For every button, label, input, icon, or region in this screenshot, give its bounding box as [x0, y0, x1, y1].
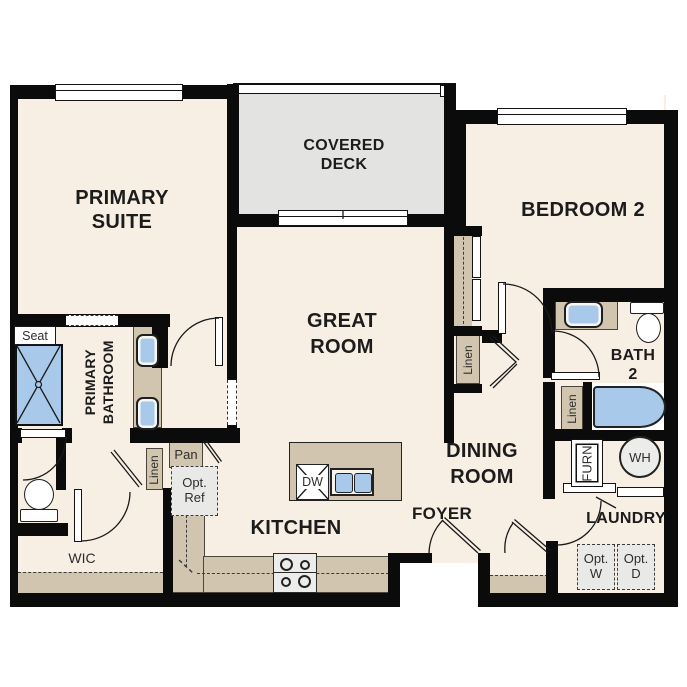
wall [444, 226, 482, 236]
wall [227, 84, 239, 216]
wall [388, 553, 432, 563]
primary-suite-door [215, 317, 223, 366]
bathtub [593, 386, 666, 428]
stove [273, 553, 317, 593]
opt-ref-line2: Ref [184, 491, 204, 506]
room-label-primary-suite: PRIMARY [42, 187, 202, 210]
bath2-toilet-bowl [636, 313, 661, 343]
kitchen-sink-basin-right [354, 473, 372, 493]
kitchen-counter-left [172, 512, 205, 593]
burner [281, 577, 291, 587]
primary-sink-2 [136, 397, 159, 430]
wall [227, 216, 237, 382]
opt-ref-line1: Opt. [182, 476, 207, 491]
wall [452, 110, 466, 228]
dishwasher: DW [296, 464, 329, 500]
kitchen-sink [330, 468, 374, 496]
room-label-kitchen: KITCHEN [216, 517, 376, 540]
wall [546, 541, 558, 593]
primary-toilet-tank [20, 509, 58, 522]
primary-sink-1 [136, 334, 159, 367]
room-label-bedroom2: BEDROOM 2 [483, 199, 683, 222]
wall [56, 430, 66, 490]
water-closet-door [20, 429, 66, 438]
wall [543, 382, 555, 429]
wh-label: WH [629, 450, 651, 465]
room-label-great-room-2: ROOM [262, 336, 422, 359]
primary-toilet-bowl [24, 479, 54, 510]
room-label-foyer: FOYER [382, 504, 502, 524]
room-label-laundry: LAUNDRY [566, 510, 686, 528]
room-label-primary-bathroom: PRIMARY BATHROOM [81, 312, 117, 452]
linen-label-hall: Linen [147, 450, 161, 490]
bedroom2-door [498, 282, 506, 334]
room-label-dining: DINING [402, 440, 562, 463]
dw-label: DW [301, 475, 324, 489]
deck-rail-band [235, 85, 454, 94]
wall [478, 593, 678, 607]
stove-divider [274, 572, 316, 573]
optional-washer: Opt. W [577, 544, 615, 590]
burner [300, 560, 310, 570]
wic-door [74, 489, 82, 542]
bedroom2-closet-bifold-2 [472, 279, 481, 321]
primary-suite-window [55, 84, 183, 101]
room-label-wic: WIC [52, 550, 112, 566]
water-heater: WH [619, 436, 661, 478]
room-label-great-room: GREAT [262, 310, 422, 333]
furnace-closet-slider-2 [617, 487, 664, 497]
opt-d-line2: D [631, 567, 640, 582]
seat-label: Seat [22, 329, 48, 343]
counter-dashline-vertical [186, 515, 187, 567]
wall [478, 553, 490, 607]
deck-sliding-door [278, 210, 408, 226]
furn-label: FURN [580, 442, 595, 486]
bath2-sink [564, 301, 603, 328]
optional-dryer: Opt. D [617, 544, 655, 590]
linen-label-dining-hall: Linen [461, 340, 475, 380]
wall [10, 523, 68, 536]
wall [543, 288, 678, 302]
room-label-bath2: BATH [593, 347, 673, 365]
optional-refrigerator: Opt. Ref [171, 466, 218, 516]
opt-w-line2: W [590, 567, 602, 582]
opt-d-line1: Opt. [624, 552, 649, 567]
wall [130, 428, 240, 443]
bedroom2-window [497, 108, 627, 125]
exterior-patch [456, 90, 664, 110]
burner [298, 575, 311, 588]
room-label-bath2-num: 2 [593, 366, 673, 384]
wall [10, 593, 388, 607]
wic-shelf [18, 572, 163, 593]
room-label-covered-deck-2: DECK [264, 156, 424, 174]
wall [583, 382, 592, 430]
opt-w-line1: Opt. [584, 552, 609, 567]
wall [454, 384, 482, 393]
shower-seat: Seat [14, 326, 56, 345]
floor-plan: Seat DW Opt. Ref Opt. W Opt. D WH [0, 0, 687, 687]
great-room-hall-opening [227, 380, 237, 425]
room-label-covered-deck: COVERED [264, 137, 424, 155]
wall [444, 326, 482, 336]
burner [280, 558, 293, 571]
wall [543, 429, 678, 441]
entry-recess [400, 563, 478, 607]
bedroom2-closet-dashline [463, 232, 464, 324]
bedroom2-closet-bifold-1 [472, 236, 481, 278]
foyer-closet-shelf [490, 575, 548, 593]
pan-label: Pan [169, 447, 203, 462]
room-label-dining-2: ROOM [402, 466, 562, 489]
room-label-primary-suite-2: SUITE [42, 211, 202, 234]
kitchen-sink-basin-left [335, 473, 353, 493]
linen-label-bath2: Linen [565, 389, 579, 429]
shower [15, 344, 63, 426]
